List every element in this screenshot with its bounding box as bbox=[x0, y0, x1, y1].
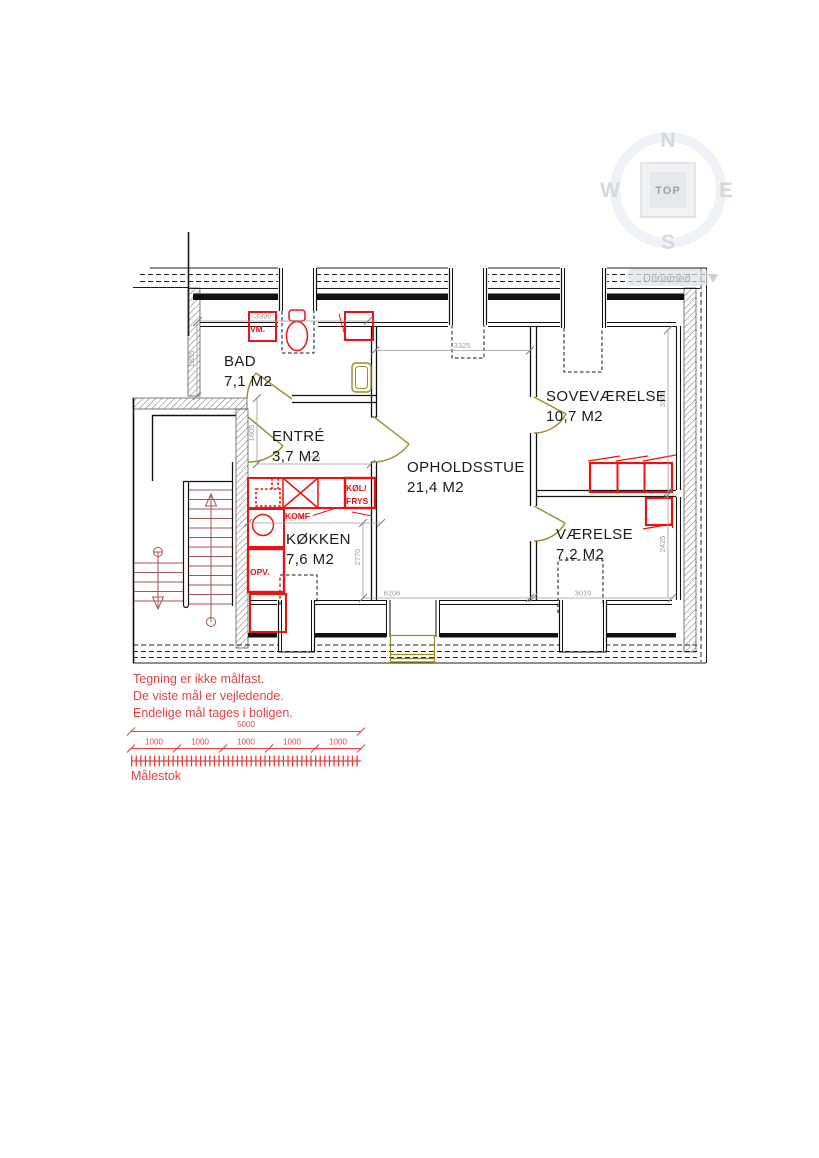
viewport-name-dropdown[interactable]: Unnamed bbox=[628, 269, 718, 286]
scale-total-label: 5000 bbox=[237, 720, 255, 729]
note-line-2: De viste mål er vejledende. bbox=[133, 689, 284, 703]
dim-kitchen-depth: 2770 bbox=[353, 549, 362, 566]
room-opholdsstue-area: 21,4 M2 bbox=[407, 479, 464, 496]
fridge-label-line1: KØL/ bbox=[346, 483, 367, 493]
room-sovevaerelse-area: 10,7 M2 bbox=[546, 408, 603, 425]
room-vaerelse-area: 7,2 M2 bbox=[556, 546, 604, 563]
scale-seg-label: 1000 bbox=[145, 738, 163, 747]
dim-dormer-width: 3325 bbox=[454, 341, 471, 350]
room-koekken-name: KØKKEN bbox=[286, 531, 351, 548]
dim-bad-width: 3996 bbox=[255, 312, 272, 321]
dim-entre-depth: 1605 bbox=[247, 425, 256, 442]
viewport-dropdown-arrow-icon[interactable] bbox=[708, 274, 718, 283]
staircase bbox=[134, 462, 233, 627]
compass-south[interactable]: S bbox=[661, 231, 675, 254]
dishwasher-label: OPV. bbox=[250, 567, 270, 577]
note-line-1: Tegning er ikke målfast. bbox=[133, 672, 264, 686]
compass-north[interactable]: N bbox=[660, 129, 675, 152]
washing-machine-label: VM. bbox=[250, 324, 265, 334]
note-line-3: Endelige mål tages i boligen. bbox=[133, 706, 293, 720]
room-vaerelse-name: VÆRELSE bbox=[556, 526, 633, 543]
room-sovevaerelse-name: SOVEVÆRELSE bbox=[546, 388, 666, 405]
viewport-name-label[interactable]: Unnamed bbox=[643, 273, 691, 285]
dim-vaerelse-width: 3010 bbox=[575, 589, 592, 598]
compass-west[interactable]: W bbox=[600, 179, 620, 202]
dim-vaerelse-depth: 2425 bbox=[658, 536, 667, 553]
floor-plan-canvas: N S W E TOP bbox=[0, 0, 819, 1158]
room-bad-area: 7,1 M2 bbox=[224, 373, 272, 390]
cad-viewport: N S W E TOP bbox=[0, 0, 819, 1158]
scale-seg-label: 1000 bbox=[283, 738, 301, 747]
compass-east[interactable]: E bbox=[719, 179, 733, 202]
room-entre-name: ENTRÉ bbox=[272, 428, 325, 445]
scale-seg-label: 1000 bbox=[329, 738, 347, 747]
dim-bad-depth: 1835 bbox=[187, 351, 196, 368]
view-cube[interactable]: TOP bbox=[641, 163, 695, 217]
scale-caption: Målestok bbox=[131, 769, 182, 783]
view-cube-label[interactable]: TOP bbox=[655, 185, 680, 197]
dim-stue-width: 6206 bbox=[384, 589, 401, 598]
room-koekken-area: 7,6 M2 bbox=[286, 551, 334, 568]
room-opholdsstue-name: OPHOLDSSTUE bbox=[407, 459, 525, 476]
stove-label: KOMF bbox=[285, 511, 310, 521]
room-labels: BAD 7,1 M2 ENTRÉ 3,7 M2 OPHOLDSSTUE 21,4… bbox=[224, 353, 666, 568]
room-bad-name: BAD bbox=[224, 353, 256, 370]
scale-seg-label: 1000 bbox=[237, 738, 255, 747]
notes: Tegning er ikke målfast. De viste mål er… bbox=[133, 672, 293, 720]
view-compass[interactable]: N S W E TOP bbox=[600, 129, 733, 254]
scale-bar: 5000 1000 1000 1000 1000 1000 Målestok bbox=[127, 720, 365, 783]
scale-seg-label: 1000 bbox=[191, 738, 209, 747]
fridge-label-line2: FRYS bbox=[346, 496, 369, 506]
room-entre-area: 3,7 M2 bbox=[272, 448, 320, 465]
